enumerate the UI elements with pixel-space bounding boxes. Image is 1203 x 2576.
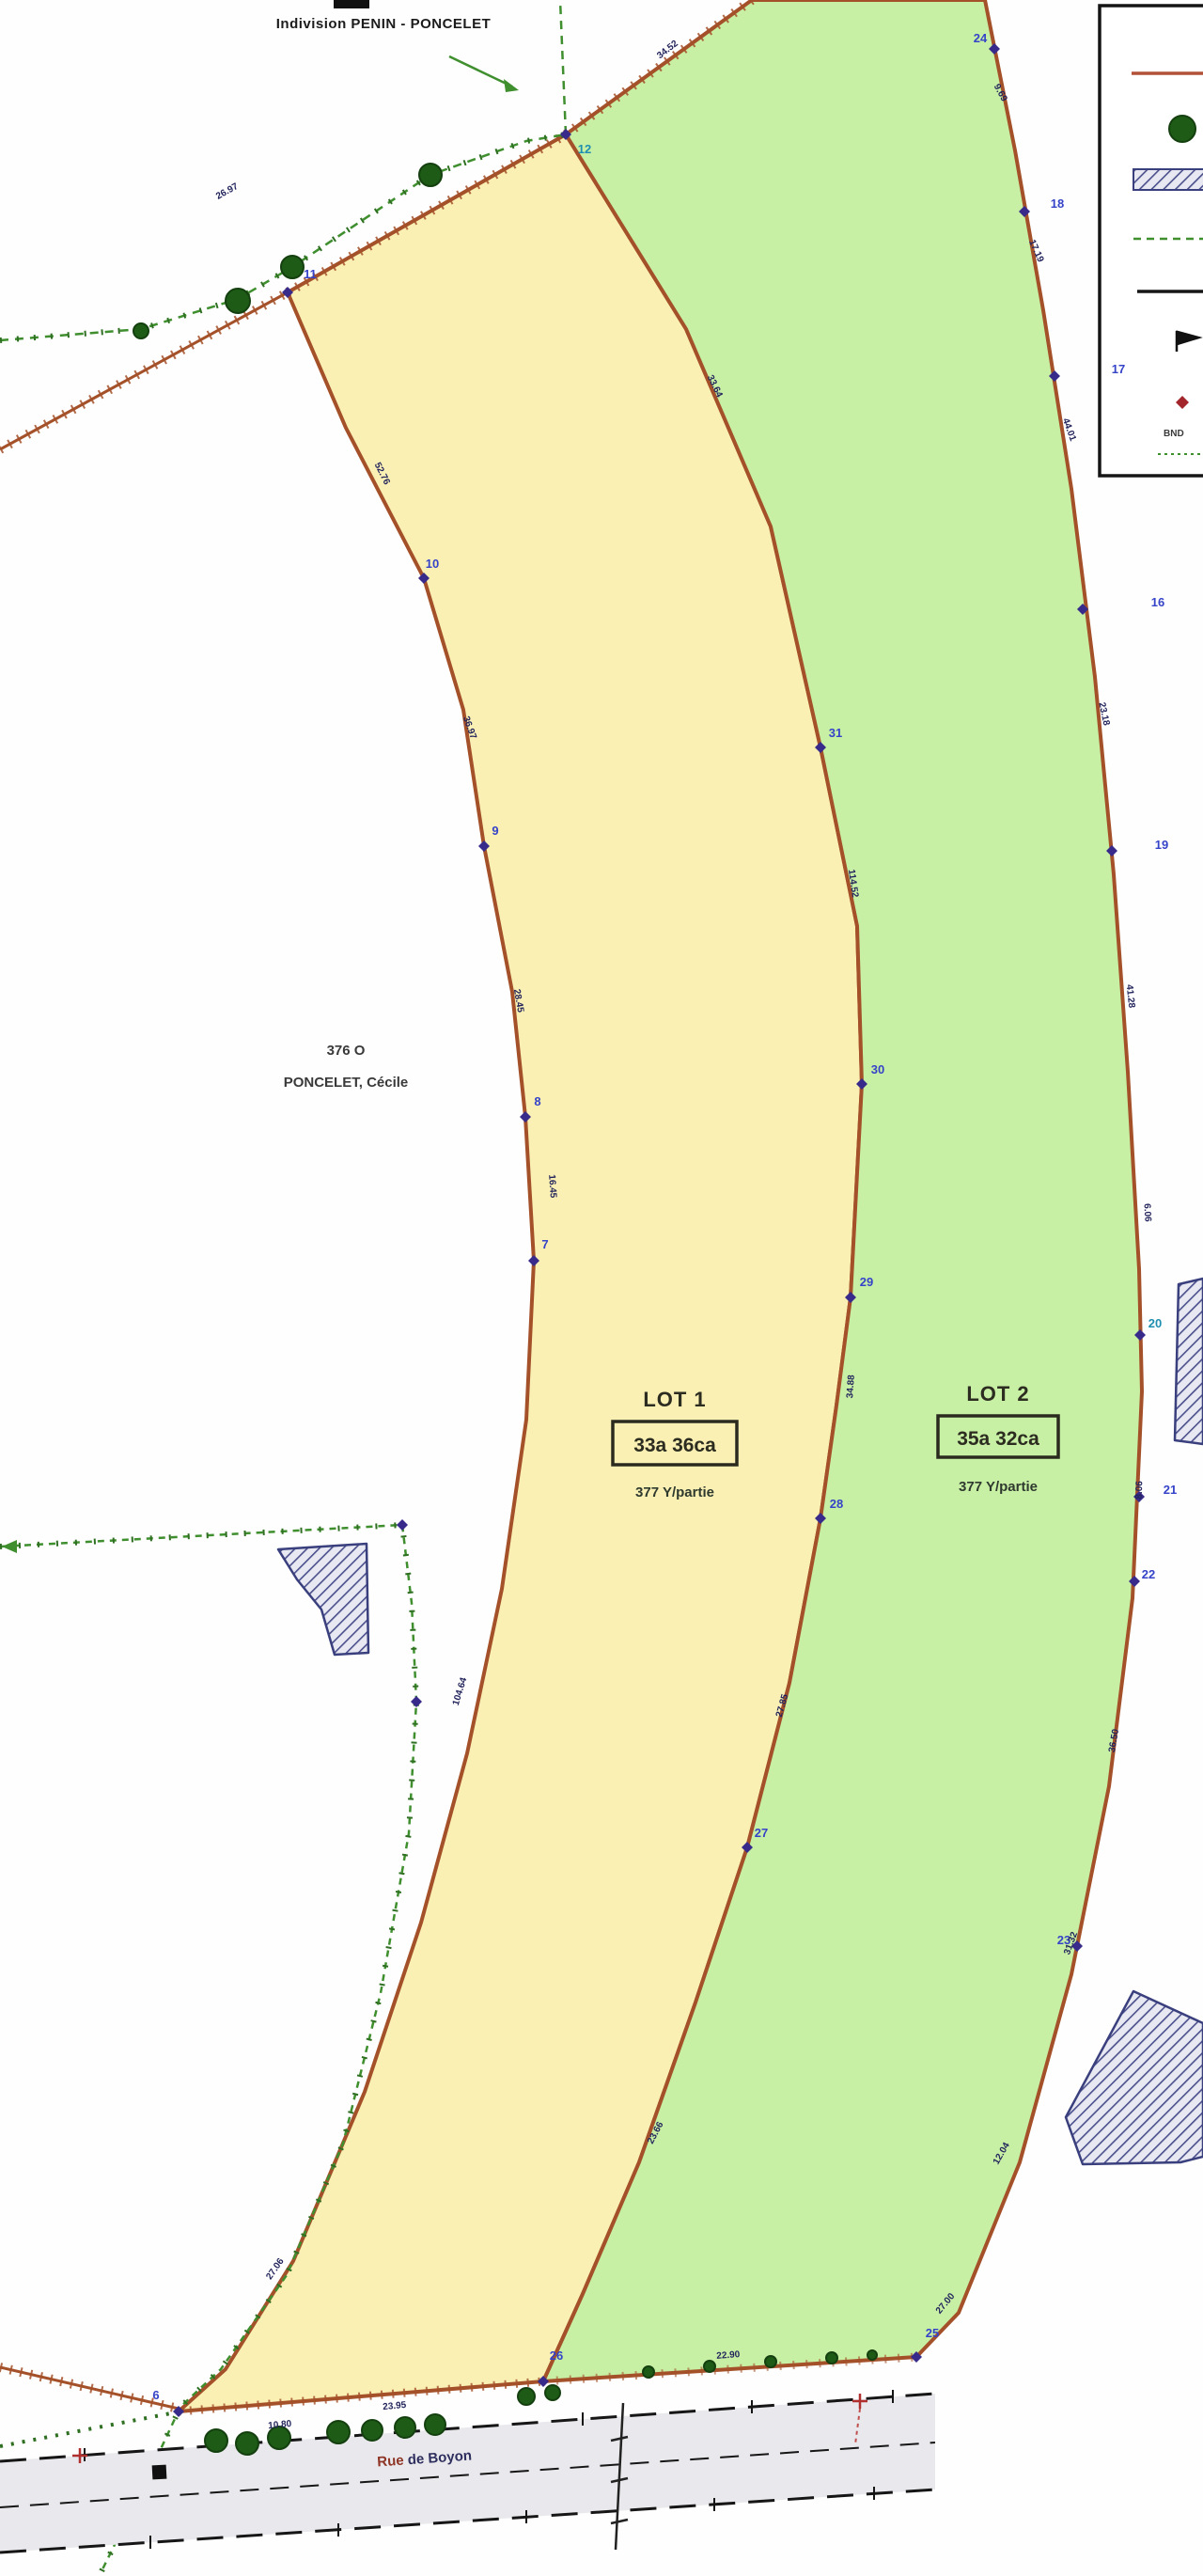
vertex-number-label: 22 <box>1142 1567 1155 1581</box>
road-surface <box>0 2394 935 2552</box>
vertex-number-label: 29 <box>860 1275 873 1289</box>
road-name-part1: Rue <box>377 2453 404 2471</box>
distance-label: 16.45 <box>546 1174 558 1199</box>
vertex-number-label: 16 <box>1151 595 1164 609</box>
vertex-number-label: 30 <box>871 1062 884 1076</box>
lot1-name: LOT 1 <box>643 1388 706 1411</box>
tree-icon <box>281 256 304 278</box>
neighbour-parcel-number: 376 O <box>327 1043 366 1059</box>
lot2-name: LOT 2 <box>966 1382 1029 1406</box>
tree-icon <box>236 2432 258 2455</box>
cropped-title-fragment <box>334 0 369 8</box>
road <box>0 2390 935 2552</box>
distance-label: 34.88 <box>845 1374 857 1399</box>
tree-icon <box>425 2414 445 2435</box>
distance-label: 8.06 <box>1134 1481 1146 1500</box>
tree-icon <box>395 2417 415 2438</box>
vertex-marker-icon <box>397 1519 408 1531</box>
legend-building-hatch-icon <box>1133 169 1203 190</box>
distance-label: 22.90 <box>716 2349 741 2362</box>
vertex-number-label: 10 <box>426 557 439 571</box>
distance-label: 10.80 <box>268 2419 292 2431</box>
vertex-number-label: 11 <box>304 267 317 281</box>
distance-label: 6.06 <box>1141 1203 1152 1222</box>
lot2-parcel-ref: 377 Y/partie <box>959 1479 1038 1495</box>
green-arrowhead-icon <box>504 79 519 92</box>
road-monument-icon <box>152 2465 167 2480</box>
plan-svg: BND 121110987631302928272624181716192021… <box>0 0 1203 2576</box>
distance-label: 26.97 <box>214 181 241 202</box>
tree-icon <box>205 2429 227 2452</box>
distance-label: 41.28 <box>1124 984 1137 1009</box>
building-right-lower <box>1066 1991 1203 2164</box>
vertex-number-label: 6 <box>152 2388 159 2402</box>
tree-icon <box>545 2385 560 2400</box>
neighbour-parcel-owner: PONCELET, Cécile <box>284 1075 409 1091</box>
tree-icon <box>867 2350 877 2360</box>
vertex-marker-icon <box>411 1696 422 1707</box>
vertex-number-label: 19 <box>1155 838 1168 852</box>
tree-icon <box>226 289 250 313</box>
vertex-number-label: 8 <box>534 1094 540 1108</box>
vertex-number-label: 27 <box>755 1826 768 1840</box>
lot1-parcel-ref: 377 Y/partie <box>635 1484 714 1500</box>
vertex-number-label: 7 <box>541 1237 548 1251</box>
neighbour-parcel-note: 376 O PONCELET, Cécile <box>284 1043 409 1091</box>
lot2-area: 35a 32ca <box>957 1428 1039 1450</box>
lot1-area: 33a 36ca <box>633 1435 716 1456</box>
tree-icon <box>704 2361 715 2372</box>
vertex-number-label: 17 <box>1112 362 1125 376</box>
legend-tree-icon <box>1169 116 1195 142</box>
legend-box <box>1100 6 1203 476</box>
vertex-number-label: 9 <box>492 824 498 838</box>
legend: BND <box>1100 6 1203 476</box>
vertex-number-label: 20 <box>1148 1316 1162 1330</box>
tree-icon <box>765 2356 776 2367</box>
tree-icon <box>643 2366 654 2378</box>
vertex-number-label: 21 <box>1164 1483 1177 1497</box>
building-right-upper <box>1175 1279 1203 1444</box>
building-left <box>278 1544 368 1655</box>
distance-label: 104.64 <box>451 1676 470 1707</box>
vertex-number-label: 28 <box>830 1497 843 1511</box>
plan-title: Indivision PENIN - PONCELET <box>276 16 492 32</box>
vertex-number-label: 26 <box>550 2348 563 2363</box>
vertex-number-label: 12 <box>578 142 591 156</box>
tree-icon <box>826 2352 837 2364</box>
survey-plan-page: BND 121110987631302928272624181716192021… <box>0 0 1203 2576</box>
tree-icon <box>133 323 148 338</box>
vertex-number-label: 18 <box>1051 196 1064 211</box>
tree-icon <box>518 2388 535 2405</box>
legend-note: BND <box>1164 429 1184 439</box>
vertex-number-label: 25 <box>926 2326 939 2340</box>
tree-icon <box>327 2421 350 2443</box>
distance-label: 23.95 <box>383 2400 407 2412</box>
tree-icon <box>419 164 442 186</box>
green-arrowhead-icon <box>2 1540 17 1553</box>
tree-icon <box>362 2420 383 2441</box>
vertex-number-label: 24 <box>974 31 988 45</box>
vertex-number-label: 31 <box>829 726 842 740</box>
